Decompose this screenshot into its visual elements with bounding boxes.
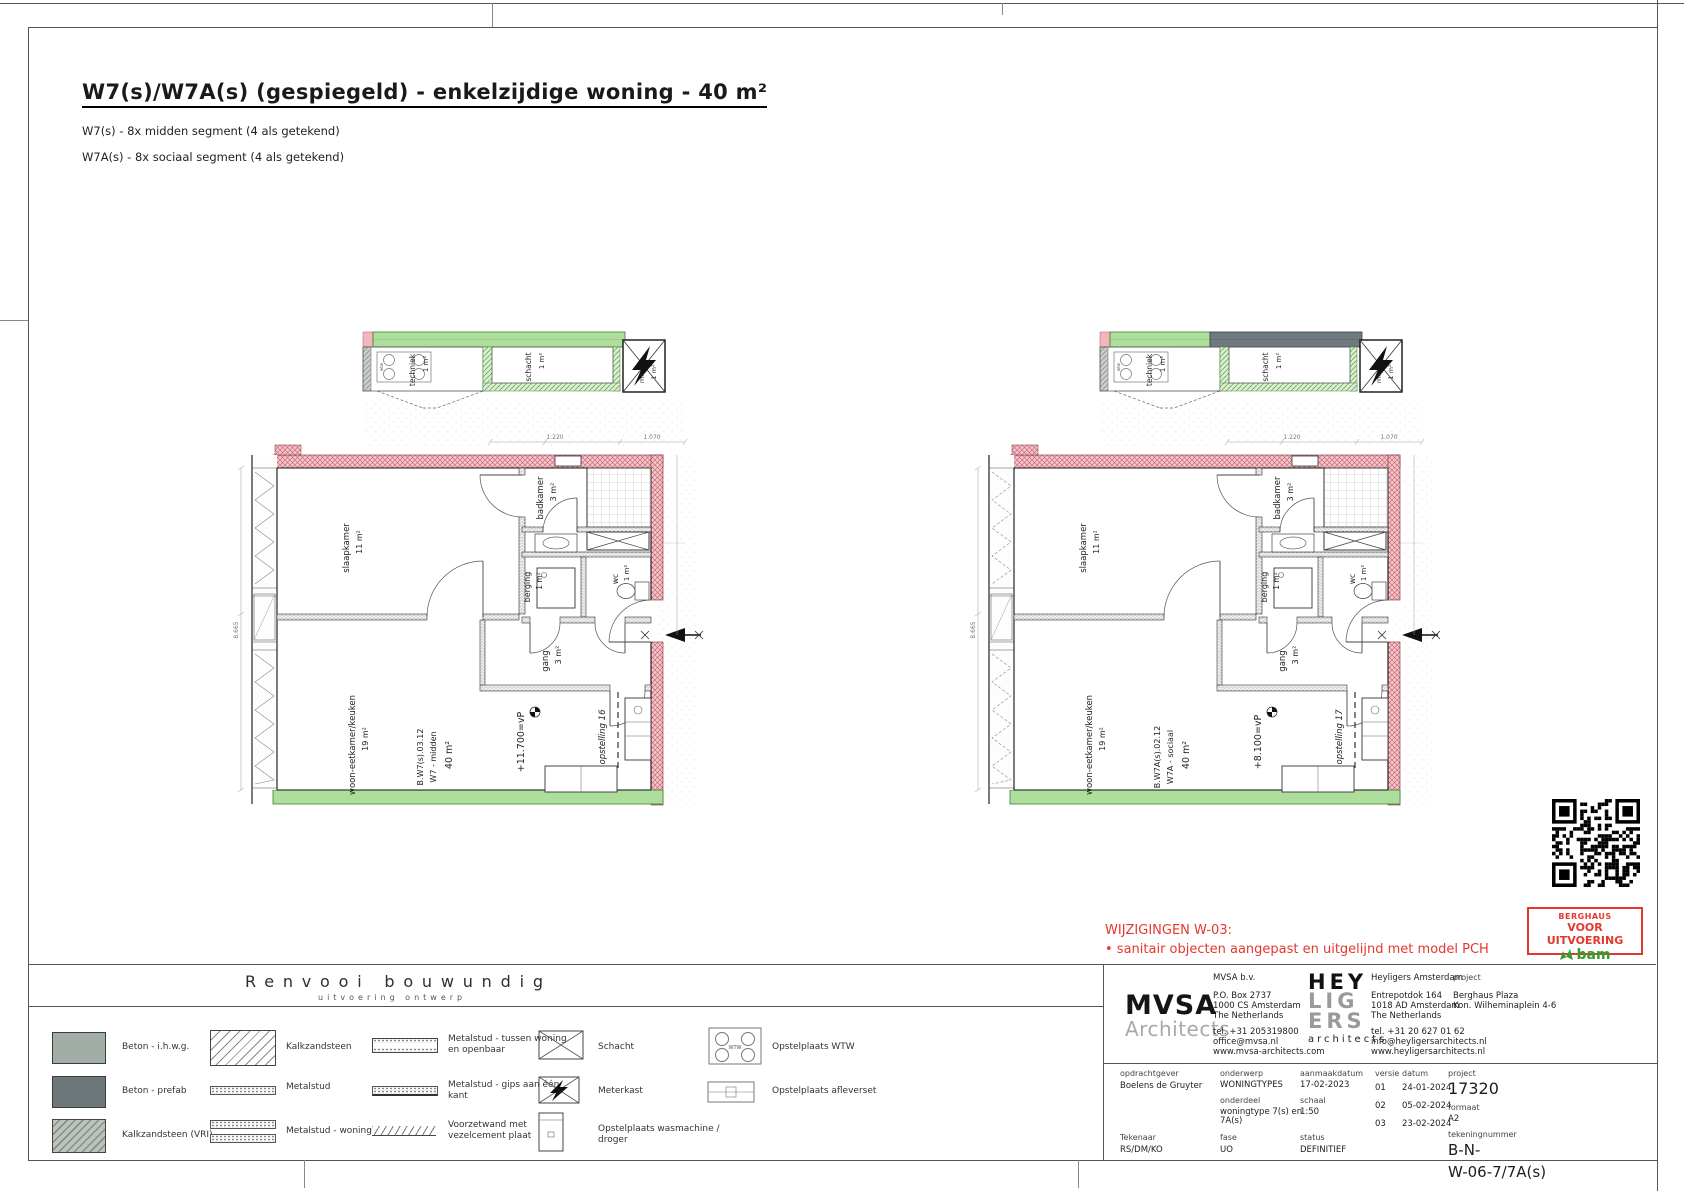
wall-pink-corner: [275, 445, 301, 455]
dimension-text: 8.665: [233, 621, 240, 638]
qr-module: [1622, 831, 1626, 835]
qr-module: [1605, 876, 1609, 880]
plan-label: opstelling 17: [1335, 709, 1345, 765]
sheet-frame-line: [28, 27, 29, 1160]
onderdeel-value: 7A(s): [1220, 1116, 1242, 1126]
qr-module: [1612, 838, 1616, 842]
mvsa-email: office@mvsa.nl: [1213, 1037, 1278, 1047]
tekeningnummer-value: W-06-7/7A(s): [1448, 1163, 1546, 1181]
sheet-frame-line: [28, 27, 1657, 28]
qr-module: [1552, 852, 1556, 856]
qr-module: [1601, 883, 1605, 887]
qr-module: [1601, 834, 1605, 838]
approval-stamp: BERGHAUS VOOR UITVOERING bam: [1527, 907, 1643, 955]
qr-module: [1633, 845, 1637, 849]
qr-module: [1612, 852, 1616, 856]
aanmaakdatum-value: 17-02-2023: [1300, 1080, 1349, 1090]
qr-module: [1587, 824, 1591, 828]
qr-module: [1591, 866, 1595, 870]
qr-module: [1633, 827, 1637, 831]
qr-module: [1633, 873, 1637, 877]
qr-module: [1605, 834, 1609, 838]
qr-module: [1612, 831, 1616, 835]
qr-module: [1598, 834, 1602, 838]
legend-icon-meterkast: [538, 1076, 580, 1108]
plan-label: badkamer: [1273, 476, 1283, 519]
qr-module: [1594, 852, 1598, 856]
plan-label: +8.100=vP: [1253, 714, 1264, 769]
qr-module: [1570, 831, 1574, 835]
dimension-text: 1.220: [546, 434, 563, 441]
plan-label: mk: [1375, 373, 1383, 383]
wall-metalstud: [581, 557, 586, 617]
qr-finder: [1622, 806, 1633, 817]
qr-module: [1587, 883, 1591, 887]
qr-module: [1605, 838, 1609, 842]
qr-module: [1615, 859, 1619, 863]
versie-row: 05-02-2024: [1402, 1101, 1451, 1111]
stamp-brand: bam: [1576, 947, 1610, 963]
qr-module: [1587, 880, 1591, 884]
qr-module: [1580, 817, 1584, 821]
versie-row: 03: [1375, 1119, 1386, 1129]
qr-module: [1563, 834, 1567, 838]
qr-module: [1605, 869, 1609, 873]
qr-module: [1636, 838, 1640, 842]
stamp-line2: VOOR UITVOERING: [1529, 921, 1641, 947]
plan-label: techniek: [408, 353, 417, 386]
changes-item: • sanitair objecten aangepast en uitgeli…: [1105, 941, 1489, 960]
project-label: project: [1453, 973, 1481, 982]
stamp-line1: BERGHAUS: [1529, 912, 1641, 921]
qr-module: [1601, 848, 1605, 852]
toilet-bowl: [1354, 584, 1372, 599]
wall-metalstud: [1217, 620, 1222, 685]
qr-module: [1626, 834, 1630, 838]
mvsa-addr: 1000 CS Amsterdam: [1213, 1001, 1301, 1011]
qr-module: [1598, 817, 1602, 821]
wall-niche: [1292, 456, 1318, 466]
qr-module: [1594, 838, 1598, 842]
qr-module: [1598, 869, 1602, 873]
plan-label: wc: [1348, 574, 1357, 584]
qr-module: [1619, 883, 1623, 887]
qr-module: [1612, 845, 1616, 849]
wall-metalstud: [1256, 468, 1262, 475]
qr-module: [1615, 869, 1619, 873]
qr-module: [1605, 813, 1609, 817]
wall-metalstud: [577, 527, 651, 532]
qr-module: [1608, 834, 1612, 838]
fold-mark: [1078, 1160, 1079, 1188]
plan-label: badkamer: [536, 476, 546, 519]
plan-label: gang: [1278, 650, 1288, 671]
wall-hatch: [1100, 347, 1108, 391]
floor-texture: [1102, 398, 1422, 448]
wall-metalstud: [1382, 685, 1388, 691]
qr-module: [1587, 838, 1591, 842]
qr-module: [1615, 838, 1619, 842]
facade-wall: [252, 455, 277, 790]
qr-module: [1629, 827, 1633, 831]
qr-module: [1608, 876, 1612, 880]
qr-module: [1594, 817, 1598, 821]
qr-module: [1619, 852, 1623, 856]
shower-tiles: [1324, 468, 1388, 527]
qr-module: [1556, 848, 1560, 852]
wall-pink-stub: [363, 332, 373, 347]
plan-label: 1 m²: [650, 364, 658, 380]
qr-module: [1608, 817, 1612, 821]
plan-label: schacht: [524, 352, 533, 381]
project-num: 17320: [1448, 1079, 1499, 1098]
titleblock: MVSA Architects MVSA b.v. P.O. Box 2737 …: [1103, 965, 1657, 1160]
floor-texture: [365, 398, 685, 448]
qr-module: [1556, 831, 1560, 835]
hey-tel: tel. +31 20 627 01 62: [1371, 1027, 1465, 1037]
plan-label: 19 m²: [1098, 727, 1107, 751]
qr-module: [1580, 866, 1584, 870]
qr-module: [1598, 827, 1602, 831]
qr-module: [1626, 866, 1630, 870]
qr-module: [1591, 880, 1595, 884]
legend-icon-wasmachine: [538, 1112, 564, 1156]
hey-email: info@heyligersarchitects.nl: [1371, 1037, 1487, 1047]
qr-module: [1584, 862, 1588, 866]
qr-module: [1605, 841, 1609, 845]
tekeningnummer-label: tekeningnummer: [1448, 1130, 1517, 1139]
status-label: status: [1300, 1133, 1325, 1142]
status-value: DEFINITIEF: [1300, 1145, 1346, 1155]
qr-module: [1629, 862, 1633, 866]
qr-module: [1556, 834, 1560, 838]
wall-metalstud: [1220, 614, 1256, 620]
qr-module: [1601, 841, 1605, 845]
changes-title: WIJZIGINGEN W-03:: [1105, 922, 1489, 941]
qr-module: [1584, 841, 1588, 845]
versie-row: 24-01-2024: [1402, 1083, 1451, 1093]
facade-wall: [989, 455, 1014, 790]
qr-module: [1626, 862, 1630, 866]
qr-module: [1587, 820, 1591, 824]
mvsa-tel: tel. +31 205319800: [1213, 1027, 1299, 1037]
wall-green-hatch: [1220, 383, 1357, 391]
qr-module: [1559, 852, 1563, 856]
qr-module: [1612, 862, 1616, 866]
qr-module: [1615, 866, 1619, 870]
kitchen-counter: [625, 698, 651, 760]
wall-pink-top: [1010, 455, 1400, 468]
qr-module: [1636, 855, 1640, 859]
tekenaar-label: Tekenaar: [1120, 1133, 1156, 1142]
qr-module: [1598, 873, 1602, 877]
qr-module: [1633, 866, 1637, 870]
qr-module: [1580, 810, 1584, 814]
legend-icon-schacht: [538, 1030, 584, 1064]
fold-mark: [304, 1160, 305, 1188]
plan-label: schacht: [1261, 352, 1270, 381]
plan-label: woon-eetkamer/keuken: [1085, 695, 1095, 795]
wall-metalstud: [1217, 685, 1347, 691]
qr-module: [1580, 838, 1584, 842]
plan-label: 19 m²: [361, 727, 370, 751]
floorplan-w7a: wtwtechniek1 m²schacht1 m²mk1 m²slaapkam…: [962, 290, 1442, 815]
qr-module: [1605, 817, 1609, 821]
qr-module: [1615, 848, 1619, 852]
qr-module: [1622, 845, 1626, 849]
qr-module: [1605, 873, 1609, 877]
wall-metalstud: [480, 620, 485, 685]
legend-label: Opstelplaats wasmachine / droger: [598, 1124, 730, 1146]
qr-module: [1584, 824, 1588, 828]
qr-module: [1563, 827, 1567, 831]
qr-module: [1594, 873, 1598, 877]
legend-icon-kalkzandsteen: [210, 1030, 276, 1066]
plan-label: 3 m²: [554, 646, 563, 665]
hey-company: Heyligers Amsterdam: [1371, 973, 1463, 983]
qr-module: [1612, 876, 1616, 880]
qr-module: [1629, 848, 1633, 852]
legend-title-line: [28, 1006, 1103, 1007]
qr-module: [1552, 827, 1556, 831]
qr-module: [1619, 880, 1623, 884]
wall-metalstud: [483, 614, 519, 620]
qr-module: [1584, 803, 1588, 807]
bam-logo-icon: [1559, 949, 1574, 961]
legend-icon-metalstud-tussen: [372, 1038, 438, 1053]
qr-module: [1615, 876, 1619, 880]
toilet-cistern: [1372, 582, 1386, 600]
toilet-bowl: [617, 584, 635, 599]
plan-label: W7 - midden: [429, 731, 438, 782]
qr-module: [1636, 866, 1640, 870]
plan-label: 40 m²: [1181, 741, 1192, 769]
wall-pink-right: [651, 642, 663, 805]
plan-label: 1 m²: [1159, 356, 1167, 372]
qr-module: [1594, 845, 1598, 849]
qr-module: [1626, 873, 1630, 877]
qr-module: [1598, 845, 1602, 849]
qr-module: [1598, 862, 1602, 866]
qr-module: [1594, 810, 1598, 814]
qr-module: [1594, 859, 1598, 863]
legend-icon-afleverset: [706, 1080, 756, 1108]
qr-module: [1598, 803, 1602, 807]
qr-module: [1580, 827, 1584, 831]
qr-module: [1566, 841, 1570, 845]
qr-module: [1580, 803, 1584, 807]
hey-addr: 1018 AD Amsterdam: [1371, 1001, 1460, 1011]
dimension-text: 1.070: [1380, 434, 1397, 441]
qr-module: [1577, 827, 1581, 831]
qr-module: [1629, 838, 1633, 842]
wall-metalstud: [519, 468, 525, 475]
qr-module: [1591, 855, 1595, 859]
qr-module: [1556, 845, 1560, 849]
qr-module: [1601, 845, 1605, 849]
qr-module: [1594, 848, 1598, 852]
qr-module: [1612, 848, 1616, 852]
qr-module: [1633, 862, 1637, 866]
qr-module: [1605, 855, 1609, 859]
qr-module: [1633, 852, 1637, 856]
fase-label: fase: [1220, 1133, 1237, 1142]
qr-module: [1636, 862, 1640, 866]
qr-code: [1552, 799, 1640, 887]
plan-label: 1 m²: [1360, 565, 1368, 581]
plan-label: slaapkamer: [1079, 523, 1089, 573]
plan-label: 1 m²: [1387, 364, 1395, 380]
qr-module: [1587, 859, 1591, 863]
qr-module: [1556, 827, 1560, 831]
toilet-cistern: [635, 582, 649, 600]
plan-label: W7A - sociaal: [1166, 730, 1175, 784]
plan-label: 1 m²: [422, 356, 430, 372]
mvsa-web: www.mvsa-architects.com: [1213, 1047, 1325, 1057]
qr-module: [1605, 852, 1609, 856]
plan-label: 1 m²: [1272, 572, 1281, 589]
wall-metalstud: [522, 617, 530, 623]
fold-mark: [0, 320, 28, 321]
versie-row: 02: [1375, 1101, 1386, 1111]
qr-module: [1566, 852, 1570, 856]
qr-module: [1584, 883, 1588, 887]
wall-metalstud: [1259, 527, 1280, 532]
sheet-frame-line: [28, 1160, 1657, 1161]
legend-icon-beton-ihwg: [52, 1032, 106, 1064]
qr-module: [1587, 827, 1591, 831]
wall-pink-corner: [1012, 445, 1038, 455]
qr-module: [1608, 862, 1612, 866]
legend-icon-metalstud-gips: [372, 1086, 438, 1096]
qr-module: [1584, 831, 1588, 835]
qr-module: [1591, 845, 1595, 849]
wall-metalstud: [522, 552, 651, 557]
fase-value: UO: [1220, 1145, 1233, 1155]
wall-metalstud: [277, 614, 427, 620]
legend-label: Opstelplaats afleverset: [772, 1086, 904, 1097]
qr-module: [1552, 838, 1556, 842]
project-name: Berghaus Plaza: [1453, 991, 1518, 1001]
legend-icon-voorzetwand: [372, 1126, 436, 1136]
qr-module: [1570, 834, 1574, 838]
wall-pink-right: [1388, 642, 1400, 805]
plan-label: B.W7(s).03.12: [416, 729, 425, 786]
subtitle-w7: W7(s) - 8x midden segment (4 als geteken…: [82, 124, 340, 138]
qr-module: [1584, 866, 1588, 870]
schaal-label: schaal: [1300, 1096, 1326, 1105]
qr-module: [1636, 834, 1640, 838]
shower-tiles: [587, 468, 651, 527]
wtw-tiny-label: wtw: [1116, 362, 1121, 371]
floorplan-w7: wtwtechniek1 m²schacht1 m²mk1 m²slaapkam…: [225, 290, 705, 815]
plan-label: wc: [611, 574, 620, 584]
wall-metalstud: [1259, 552, 1388, 557]
qr-module: [1622, 876, 1626, 880]
qr-module: [1580, 841, 1584, 845]
qr-module: [1636, 827, 1640, 831]
aanmaakdatum-label: aanmaakdatum: [1300, 1069, 1363, 1078]
qr-module: [1598, 824, 1602, 828]
qr-module: [1580, 824, 1584, 828]
plan-label: 3 m²: [1291, 646, 1300, 665]
wall-pink-stub: [1100, 332, 1110, 347]
qr-module: [1622, 838, 1626, 842]
wall-metalstud: [1297, 617, 1332, 623]
wall-hatch: [363, 347, 371, 391]
qr-module: [1605, 845, 1609, 849]
qr-module: [1584, 848, 1588, 852]
qr-module: [1619, 848, 1623, 852]
sheet-frame-line: [1657, 0, 1658, 1191]
qr-module: [1591, 862, 1595, 866]
qr-module: [1622, 873, 1626, 877]
wall-metalstud: [522, 527, 543, 532]
qr-module: [1587, 831, 1591, 835]
qr-module: [1580, 848, 1584, 852]
wall-metalstud: [625, 617, 651, 623]
dimension-text: 8.665: [970, 621, 977, 638]
hey-web: www.heyligersarchitects.nl: [1371, 1047, 1485, 1057]
onderwerp-value: WONINGTYPES: [1220, 1080, 1283, 1090]
qr-module: [1598, 852, 1602, 856]
plan-label: berging: [523, 572, 532, 603]
qr-module: [1552, 845, 1556, 849]
onderwerp-label: onderwerp: [1220, 1069, 1263, 1078]
legend-icon-metalstud: [210, 1086, 276, 1095]
plan-label: 40 m²: [444, 741, 455, 769]
qr-module: [1633, 841, 1637, 845]
schacht-outline: [492, 347, 613, 383]
qr-module: [1629, 831, 1633, 835]
qr-module: [1556, 841, 1560, 845]
qr-module: [1626, 827, 1630, 831]
qr-module: [1626, 845, 1630, 849]
wall-metalstud: [1362, 617, 1388, 623]
qr-module: [1612, 859, 1616, 863]
qr-module: [1636, 869, 1640, 873]
qr-module: [1615, 845, 1619, 849]
qr-module: [1556, 855, 1560, 859]
dimension-text: 1.220: [1283, 434, 1300, 441]
qr-module: [1636, 841, 1640, 845]
wall-metalstud: [1314, 527, 1388, 532]
qr-module: [1622, 852, 1626, 856]
qr-module: [1598, 883, 1602, 887]
qr-finder: [1559, 806, 1570, 817]
qr-module: [1605, 810, 1609, 814]
qr-module: [1577, 838, 1581, 842]
legend-subtitle: uitvoering ontwerp: [318, 993, 466, 1002]
qr-module: [1552, 834, 1556, 838]
plan-label: mk: [638, 373, 646, 383]
qr-module: [1591, 848, 1595, 852]
wall-metalstud: [480, 685, 610, 691]
qr-module: [1601, 838, 1605, 842]
qr-module: [1605, 824, 1609, 828]
qr-module: [1598, 841, 1602, 845]
project-address: Kon. Wilheminaplein 4-6: [1453, 1001, 1556, 1011]
wall-metalstud: [1014, 614, 1164, 620]
plan-label: 3 m²: [549, 483, 558, 502]
qr-module: [1612, 855, 1616, 859]
qr-module: [1598, 806, 1602, 810]
qr-module: [1615, 880, 1619, 884]
qr-module: [1570, 855, 1574, 859]
qr-module: [1566, 848, 1570, 852]
qr-module: [1615, 831, 1619, 835]
qr-module: [1580, 852, 1584, 856]
